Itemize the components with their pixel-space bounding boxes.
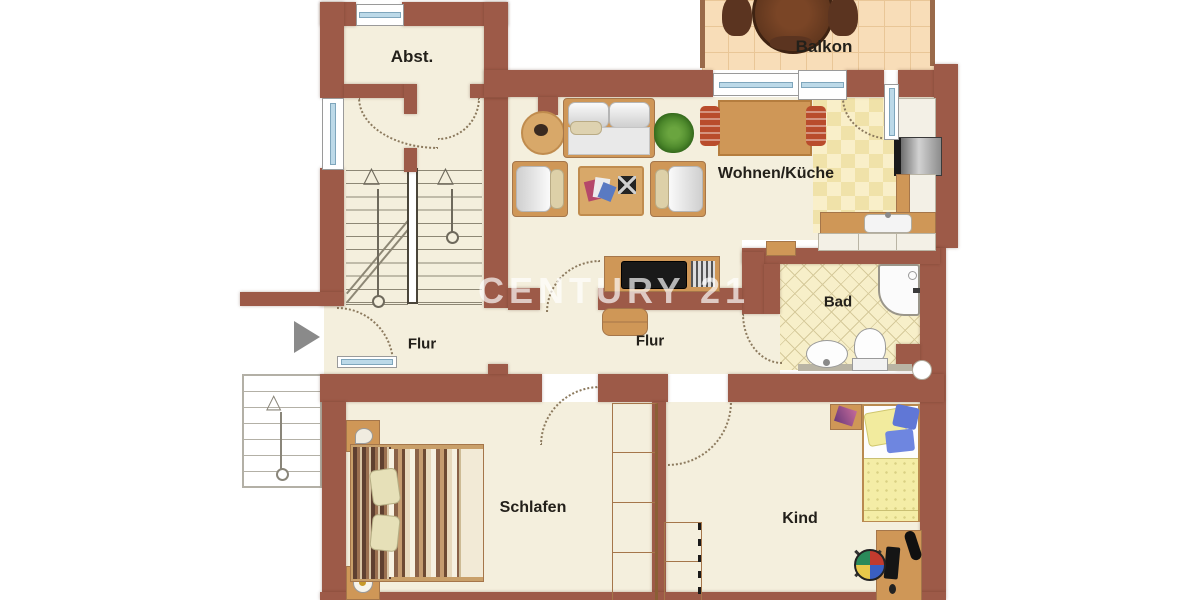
- room-label-flur-mitte: Flur: [636, 333, 664, 350]
- outdoor-stairs-up-arrow: △: [266, 392, 281, 412]
- wall: [320, 2, 344, 98]
- door-glass: [341, 359, 393, 365]
- balcony-door: [798, 70, 847, 100]
- armchair-pillow: [550, 169, 564, 209]
- teapot: [534, 124, 548, 136]
- pillow: [369, 467, 402, 507]
- window-glass: [330, 103, 336, 165]
- plant: [654, 113, 694, 153]
- wardrobe: [612, 403, 658, 600]
- pillow-blue: [892, 404, 920, 431]
- monitor: [903, 530, 923, 562]
- room-label-bad: Bad: [824, 294, 852, 311]
- duvet-fold-line: [864, 510, 918, 511]
- duvet: [389, 449, 461, 577]
- stair-arrow-stem: [451, 189, 453, 233]
- watermark: CENTURY 21: [478, 270, 750, 312]
- wall: [404, 148, 417, 172]
- sofa-cushion: [609, 102, 650, 128]
- window-glass: [719, 82, 793, 88]
- wall: [320, 374, 542, 402]
- pillow: [369, 514, 401, 553]
- bathroom-sink: [806, 340, 848, 368]
- shelf: [766, 241, 796, 256]
- dining-chair: [700, 106, 720, 146]
- wardrobe-hinges: [698, 523, 701, 600]
- kitchen-cabinet-row: [818, 233, 936, 251]
- wall: [488, 364, 508, 374]
- cushion-blue: [885, 429, 915, 454]
- kitchen-door-leaf: [884, 84, 899, 140]
- wall: [240, 292, 344, 306]
- duvet-dotted: [864, 458, 918, 521]
- sofa-bolster: [570, 121, 602, 135]
- door-glass: [801, 82, 843, 88]
- nightstand: [830, 404, 862, 430]
- coffee-table: [578, 166, 644, 216]
- sofa: [563, 98, 655, 158]
- wall: [484, 70, 713, 97]
- balcony-railing: [700, 0, 705, 68]
- kitchen-cabinet: [896, 98, 936, 139]
- balcony-chair: [722, 0, 752, 36]
- shower-drain: [908, 271, 917, 280]
- room-label-flur-links: Flur: [408, 336, 436, 353]
- stove: [894, 137, 942, 176]
- dining-chair: [806, 106, 826, 146]
- room-label-abst: Abst.: [391, 47, 434, 67]
- stair-arrow-stem: [377, 189, 379, 297]
- wall: [845, 70, 884, 97]
- stair-divider: [407, 168, 418, 304]
- room-label-kind: Kind: [782, 510, 818, 528]
- wall: [320, 168, 344, 306]
- balcony-railing: [930, 0, 935, 66]
- door-glass: [889, 88, 895, 136]
- lamp: [355, 428, 373, 444]
- window-glass: [359, 12, 401, 18]
- armchair-pillow: [655, 169, 669, 209]
- room-label-balkon: Balkon: [796, 37, 853, 57]
- stair-up-arrow: △: [437, 164, 454, 186]
- wall: [484, 2, 508, 308]
- armchair: [650, 161, 706, 217]
- single-bed: [862, 404, 920, 522]
- window: [356, 4, 404, 26]
- faucet: [823, 359, 830, 366]
- game-board: [618, 176, 636, 194]
- desk-chair: [846, 538, 890, 590]
- kitchen-sink: [864, 214, 912, 233]
- armchair-cushion: [668, 166, 703, 212]
- faucet: [885, 212, 891, 218]
- room-label-wohnen-kueche: Wohnen/Küche: [718, 165, 834, 183]
- shower-faucet: [913, 288, 920, 293]
- wall: [344, 84, 404, 98]
- floor-plan: △ △ △: [0, 0, 1200, 600]
- wall: [764, 264, 780, 314]
- wall: [322, 402, 346, 592]
- entrance-door-leaf: [337, 356, 397, 368]
- magazine: [834, 405, 857, 426]
- outdoor-stairs-stem: [280, 412, 282, 470]
- window: [713, 73, 799, 96]
- outdoor-stairs-origin: [276, 468, 289, 481]
- door-arc-schlafen: [540, 386, 600, 445]
- dining-table: [718, 100, 812, 156]
- bed-head: [353, 447, 391, 579]
- chair-seat: [854, 549, 886, 581]
- wall: [728, 374, 944, 402]
- wardrobe: [664, 522, 702, 600]
- kitchen-counter: [896, 174, 910, 214]
- double-bed: [350, 444, 484, 582]
- pipe-column: [912, 360, 932, 380]
- kitchen-cabinet: [908, 174, 936, 214]
- stair-arrow-origin: [446, 231, 459, 244]
- mouse: [889, 584, 896, 594]
- entrance-arrow-icon: [294, 321, 320, 353]
- balcony-chair: [828, 0, 858, 36]
- bed-fold: [459, 449, 483, 577]
- toilet-tank: [852, 358, 888, 371]
- armchair: [512, 161, 568, 217]
- window: [322, 98, 344, 170]
- table-center: [758, 121, 771, 134]
- wall: [404, 84, 417, 114]
- wall: [598, 374, 668, 402]
- room-label-schlafen: Schlafen: [500, 499, 567, 517]
- stair-arrow-origin: [372, 295, 385, 308]
- armchair-cushion: [516, 166, 551, 212]
- stair-up-arrow: △: [363, 164, 380, 186]
- wall: [920, 248, 946, 592]
